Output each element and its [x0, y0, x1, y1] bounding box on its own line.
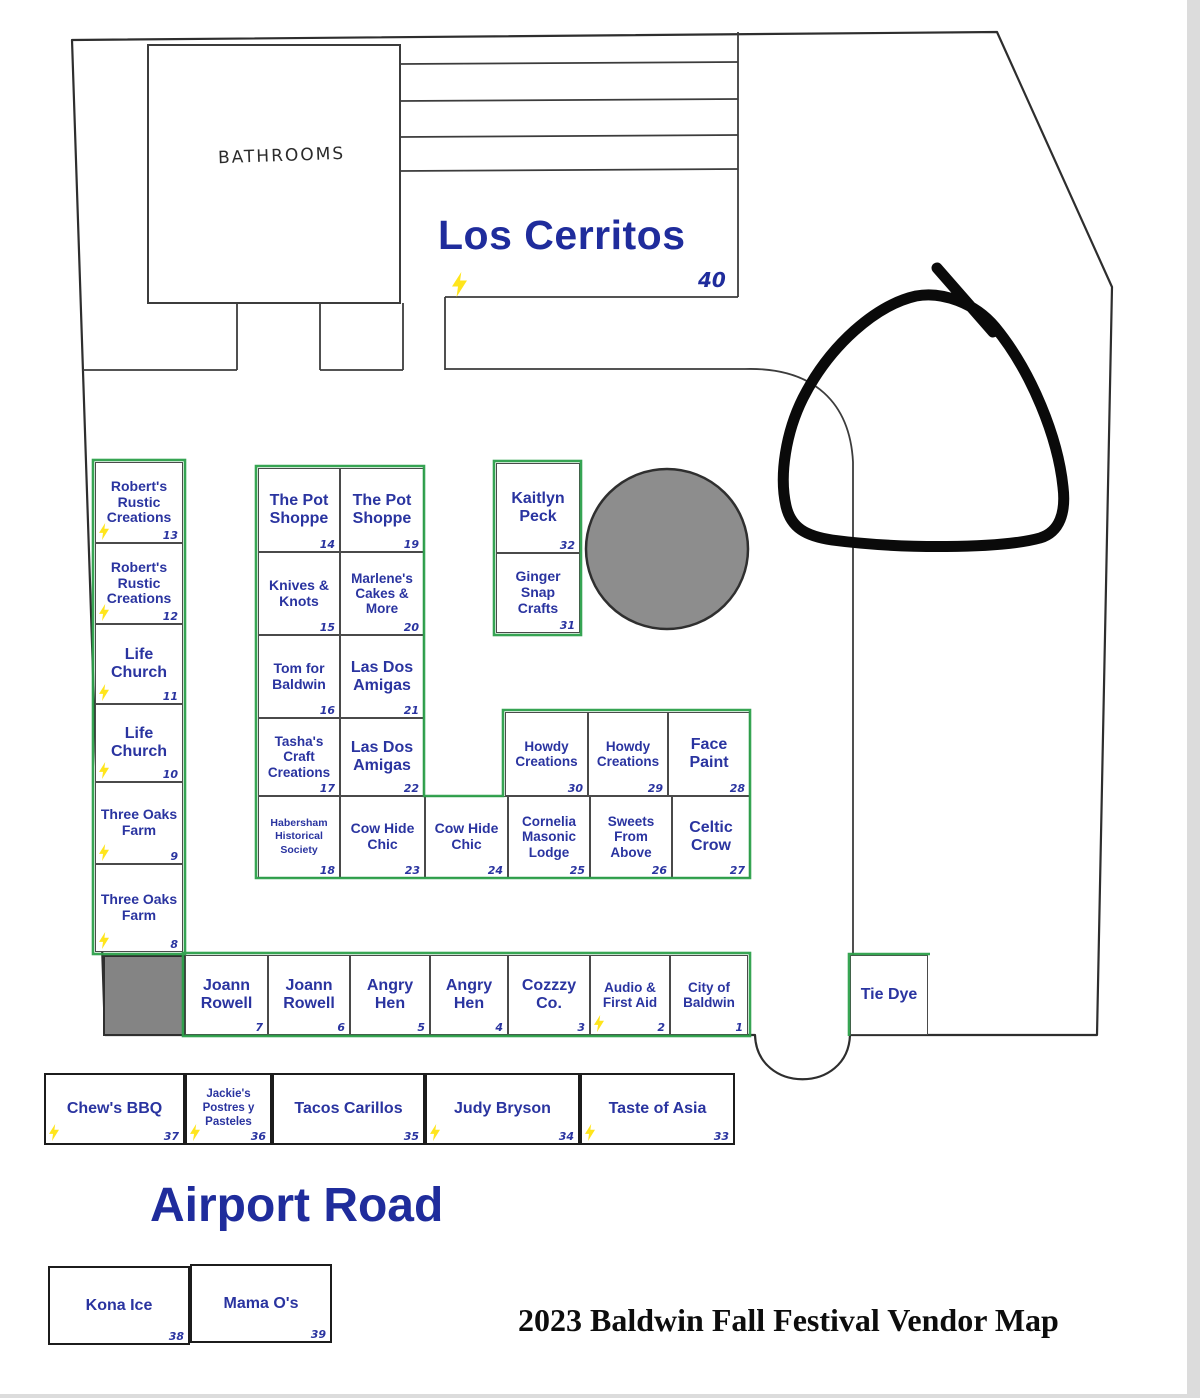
booth-name: Las Dos Amigas: [341, 738, 423, 776]
lightning-bolt-icon: [99, 844, 109, 861]
booth-name: Tacos Carillos: [291, 1099, 405, 1119]
booth-number: 15: [320, 621, 335, 634]
booth-number: 1: [735, 1021, 743, 1034]
booth-name: Jackie's Postres y Pasteles: [187, 1087, 270, 1130]
map-title: 2023 Baldwin Fall Festival Vendor Map: [518, 1302, 1059, 1339]
booth-name: Habersham Historical Society: [259, 816, 339, 857]
booth-number: 4: [495, 1021, 503, 1034]
map-outer-boundary: [72, 32, 1112, 1079]
lightning-bolt-icon: [99, 684, 109, 701]
booth-number: 8: [170, 938, 178, 951]
booth-number: 38: [169, 1330, 184, 1343]
booth-name: The Pot Shoppe: [259, 491, 339, 529]
booth-number: 35: [404, 1130, 419, 1143]
booth-14-the-pot-shoppe: The Pot Shoppe 14: [258, 468, 340, 552]
booth-16-tom-for-baldwin: Tom for Baldwin 16: [258, 635, 340, 718]
booth-name: Life Church: [96, 724, 182, 762]
booth-7-joann-rowell: Joann Rowell 7: [185, 955, 268, 1035]
booth-name: Kona Ice: [83, 1296, 156, 1316]
booth-name: Knives & Knots: [259, 577, 339, 610]
booth-28-face-paint: Face Paint 28: [668, 712, 750, 796]
lightning-bolt-icon: [452, 272, 467, 297]
booth-number: 6: [337, 1021, 345, 1034]
booth-34-judy-bryson: Judy Bryson 34: [425, 1073, 580, 1145]
booth-name: Robert's Rustic Creations: [96, 478, 182, 527]
booth-name: City of Baldwin: [671, 979, 747, 1011]
booth-name: Taste of Asia: [606, 1099, 710, 1119]
booth-26-sweets-from-above: Sweets From Above 26: [590, 796, 672, 878]
booth-30-howdy-creations: Howdy Creations 30: [505, 712, 588, 796]
booth-name: Las Dos Amigas: [341, 658, 423, 696]
booth-name: Judy Bryson: [451, 1099, 554, 1119]
marker-squiggle: [783, 268, 1063, 547]
booth-11-life-church: Life Church 11: [95, 624, 183, 704]
booth-25-cornelia-masonic-lodge: Cornelia Masonic Lodge 25: [508, 796, 590, 878]
booth-19-the-pot-shoppe: The Pot Shoppe 19: [340, 468, 424, 552]
booth-name: Angry Hen: [351, 976, 429, 1014]
booth-2-audio-and-first-aid: Audio & First Aid 2: [590, 955, 670, 1035]
booth-number: 25: [570, 864, 585, 877]
booth-name: Audio & First Aid: [591, 979, 669, 1011]
booth-number: 16: [320, 704, 335, 717]
bathrooms-label: BATHROOMS: [218, 144, 346, 168]
los-cerritos-label: Los Cerritos: [438, 212, 686, 259]
booth-number: 31: [560, 619, 575, 632]
booth-18-habersham-historical-society: Habersham Historical Society 18: [258, 796, 340, 878]
booth-21-las-dos-amigas: Las Dos Amigas 21: [340, 635, 424, 718]
booth-name: Face Paint: [669, 735, 749, 773]
booth-17-tashas-craft-creations: Tasha's Craft Creations 17: [258, 718, 340, 796]
booth-24-cow-hide-chic: Cow Hide Chic 24: [425, 796, 508, 878]
booth-name: Howdy Creations: [506, 738, 587, 770]
lightning-bolt-icon: [430, 1124, 440, 1141]
booth-name: Tie Dye: [858, 985, 921, 1005]
booth-name: Cornelia Masonic Lodge: [509, 813, 589, 860]
booth-5-angry-hen: Angry Hen 5: [350, 955, 430, 1035]
booth-name: Tom for Baldwin: [259, 660, 339, 693]
booth-number: 29: [648, 782, 663, 795]
booth-name: Tasha's Craft Creations: [259, 733, 339, 780]
booth-37-chews-bbq: Chew's BBQ 37: [44, 1073, 185, 1145]
booth-36-jackies-postres-y-pasteles: Jackie's Postres y Pasteles 36: [185, 1073, 272, 1145]
booth-number: 28: [730, 782, 745, 795]
booth-name: Angry Hen: [431, 976, 507, 1014]
booth-number: 19: [404, 538, 419, 551]
gray-square-area: [104, 956, 185, 1035]
booth-number: 36: [251, 1130, 266, 1143]
booth-12-roberts-rustic-creations: Robert's Rustic Creations 12: [95, 543, 183, 624]
booth-27-celtic-crow: Celtic Crow 27: [672, 796, 750, 878]
bathrooms-building: [148, 45, 400, 303]
booth-name: Cow Hide Chic: [426, 820, 507, 853]
booth-name: Robert's Rustic Creations: [96, 559, 182, 608]
booth-name: Joann Rowell: [269, 976, 349, 1014]
booth-name: Cow Hide Chic: [341, 820, 424, 853]
booth-23-cow-hide-chic: Cow Hide Chic 23: [340, 796, 425, 878]
booth-number: 34: [559, 1130, 574, 1143]
booth-15-knives-and-knots: Knives & Knots 15: [258, 552, 340, 635]
booth-number: 13: [163, 529, 178, 542]
gray-circle-area: [586, 469, 748, 629]
booth-name: Three Oaks Farm: [96, 891, 182, 924]
booth-39-mama-os: Mama O's 39: [190, 1264, 332, 1343]
airport-road-label: Airport Road: [150, 1178, 443, 1233]
booth-8-three-oaks-farm: Three Oaks Farm 8: [95, 864, 183, 952]
booth-number: 30: [568, 782, 583, 795]
booth-number: 20: [404, 621, 419, 634]
booth-number: 39: [311, 1328, 326, 1341]
booth-9-three-oaks-farm: Three Oaks Farm 9: [95, 782, 183, 864]
booth-name: Ginger Snap Crafts: [497, 568, 579, 617]
booth-number: 3: [577, 1021, 585, 1034]
booth-number: 7: [255, 1021, 263, 1034]
booth-number: 10: [163, 768, 178, 781]
booth-name: Kaitlyn Peck: [497, 489, 579, 527]
lightning-bolt-icon: [594, 1015, 604, 1032]
booth-name: Celtic Crow: [673, 818, 749, 856]
booth-name: Mama O's: [221, 1294, 302, 1314]
booth-name: Howdy Creations: [589, 738, 667, 770]
booth-name: Three Oaks Farm: [96, 806, 182, 839]
booth-number: 22: [404, 782, 419, 795]
booth-number: 27: [730, 864, 745, 877]
booth-13-roberts-rustic-creations: Robert's Rustic Creations 13: [95, 462, 183, 543]
booth-35-tacos-carillos: Tacos Carillos 35: [272, 1073, 425, 1145]
booth-6-joann-rowell: Joann Rowell 6: [268, 955, 350, 1035]
booth-number: 32: [560, 539, 575, 552]
booth-number: 5: [417, 1021, 425, 1034]
booth-name: Sweets From Above: [591, 813, 671, 860]
booth-name: Joann Rowell: [186, 976, 267, 1014]
booth-name: Cozzzy Co.: [509, 976, 589, 1014]
booth-10-life-church: Life Church 10: [95, 704, 183, 782]
booth-number: 23: [405, 864, 420, 877]
booth-22-las-dos-amigas: Las Dos Amigas 22: [340, 718, 424, 796]
lightning-bolt-icon: [49, 1124, 59, 1141]
booth-20-marlenes-cakes-and-more: Marlene's Cakes & More 20: [340, 552, 424, 635]
booth-number: 9: [170, 850, 178, 863]
booth-33-taste-of-asia: Taste of Asia 33: [580, 1073, 735, 1145]
lightning-bolt-icon: [99, 932, 109, 949]
booth-1-city-of-baldwin: City of Baldwin 1: [670, 955, 748, 1035]
booth-number: 33: [714, 1130, 729, 1143]
booth-number: 12: [163, 610, 178, 623]
booth-number: 18: [320, 864, 335, 877]
booth-4-angry-hen: Angry Hen 4: [430, 955, 508, 1035]
booth-name: The Pot Shoppe: [341, 491, 423, 529]
booth-number: 37: [164, 1130, 179, 1143]
booth-number: 2: [657, 1021, 665, 1034]
booth-number: 26: [652, 864, 667, 877]
booth-38-kona-ice: Kona Ice 38: [48, 1266, 190, 1345]
booth-3-cozzzy-co: Cozzzy Co. 3: [508, 955, 590, 1035]
booth-name: Life Church: [96, 645, 182, 683]
page-edge-right: [1187, 0, 1200, 1398]
booth-number: 11: [163, 690, 178, 703]
booth-32-kaitlyn-peck: Kaitlyn Peck 32: [496, 463, 580, 553]
vendor-map: BATHROOMS Los Cerritos 40 Airport Road 2…: [0, 0, 1200, 1398]
page-edge-bottom: [0, 1394, 1200, 1398]
booth-29-howdy-creations: Howdy Creations 29: [588, 712, 668, 796]
booth-number: 21: [404, 704, 419, 717]
booth-number: 14: [320, 538, 335, 551]
los-cerritos-number: 40: [698, 268, 726, 292]
booth-tie-dye: Tie Dye: [850, 955, 928, 1035]
booth-31-ginger-snap-crafts: Ginger Snap Crafts 31: [496, 553, 580, 633]
booth-name: Chew's BBQ: [64, 1099, 165, 1119]
lightning-bolt-icon: [99, 762, 109, 779]
lightning-bolt-icon: [585, 1124, 595, 1141]
booth-number: 17: [320, 782, 335, 795]
booth-name: Marlene's Cakes & More: [341, 570, 423, 617]
booth-number: 24: [488, 864, 503, 877]
